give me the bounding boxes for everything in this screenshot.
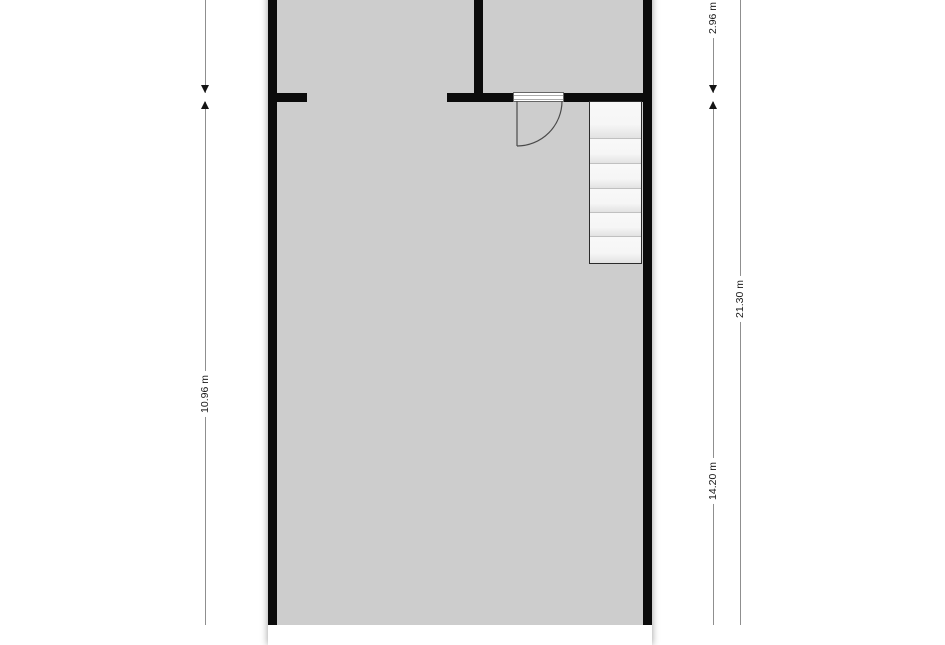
arrow-down-icon [709, 85, 717, 93]
stair-tread [590, 213, 641, 237]
arrow-down-icon [201, 85, 209, 93]
dimension-label-right-total: 21.30 m [733, 276, 747, 322]
stair-tread [590, 139, 641, 164]
stair-tread [590, 164, 641, 189]
staircase [589, 101, 642, 264]
arrow-up-icon [709, 101, 717, 109]
stair-tread [590, 102, 641, 139]
partition-wall-left-stub [268, 93, 307, 102]
arrow-up-icon [201, 101, 209, 109]
stair-tread [590, 189, 641, 213]
dimension-label-right-top: 2.96 m [706, 0, 720, 38]
stair-tread [590, 237, 641, 263]
room-divider-wall [474, 0, 483, 102]
dimension-label-right-lower: 14.20 m [706, 458, 720, 504]
door-swing-arc [505, 95, 585, 155]
dimension-label-left-height: 10.96 m [198, 371, 212, 417]
